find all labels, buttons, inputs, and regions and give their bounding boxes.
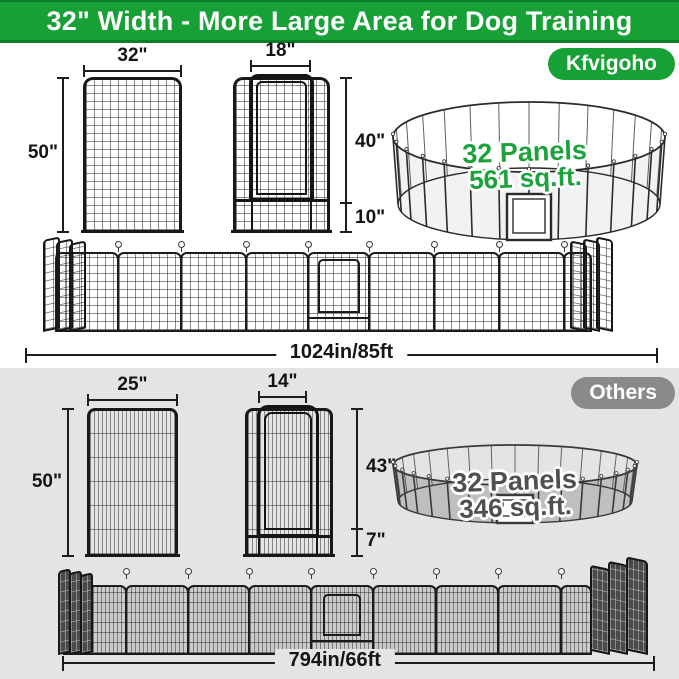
row-graphic-part [368,252,435,332]
others-pen-caption: 32 Panels 346 sq.ft. [409,464,621,523]
brand-door-width-line [250,65,311,67]
row-graphic-part [178,241,185,248]
brand-bottom-height-label: 10" [355,207,385,229]
brand-door-panel-diagram [233,77,330,233]
others-panel-width-line [87,399,178,401]
row-graphic-part [495,568,502,575]
brand-door-height-label: 40" [355,131,385,153]
banner-title: 32" Width - More Large Area for Dog Trai… [47,6,633,37]
row-graphic-part [433,568,440,575]
brand-panel-row-illustration [25,250,658,332]
others-door-panel-diagram [245,408,333,557]
row-graphic-part [590,565,610,655]
brand-total-length-label: 1024in/85ft [276,341,407,364]
brand-panel-height-label: 50" [20,142,58,164]
brand-panel-width-line [83,70,182,72]
row-graphic-part [323,594,361,636]
row-graphic-part [185,568,192,575]
others-panel-width-label: 25" [87,374,178,396]
others-panel-height-label: 50" [24,471,62,493]
others-bottom-height-label: 7" [366,530,386,552]
brand-panel-diagram [83,77,182,233]
row-graphic-part [372,585,437,655]
brand-panel-width-label: 32" [83,45,182,67]
others-panel-row-illustration [58,580,655,655]
row-graphic-part [307,252,370,332]
row-graphic-part [248,585,312,655]
row-graphic-part [246,568,253,575]
others-panel-height-line [67,408,69,557]
row-graphic-part [560,585,592,655]
row-graphic-part [305,241,312,248]
row-graphic-part [187,585,250,655]
row-graphic-part [431,241,438,248]
others-door-width-line [258,396,307,398]
row-graphic-part [123,568,130,575]
row-graphic-part [497,585,562,655]
row-graphic-part [433,252,500,332]
row-graphic-part [243,241,250,248]
others-door-width-label: 14" [258,371,307,393]
row-graphic-part [308,568,315,575]
row-graphic-part [115,241,122,248]
row-graphic-part [366,241,373,248]
others-total-length-label: 794in/66ft [275,649,395,672]
row-graphic-part [180,252,247,332]
row-graphic-part [318,259,360,313]
row-graphic-part [125,585,189,655]
others-badge: Others [571,377,675,409]
banner: 32" Width - More Large Area for Dog Trai… [0,0,679,43]
row-graphic-part [608,561,628,655]
row-graphic-part [117,252,182,332]
product-comparison-infographic: 32" Width - More Large Area for Dog Trai… [0,0,679,679]
row-graphic-part [312,640,372,642]
others-total-length-line: 794in/66ft [62,662,655,664]
row-graphic-part [626,556,648,655]
row-graphic-part [435,585,499,655]
brand-door-height-line [345,77,347,233]
brand-badge: Kfvigoho [548,48,675,80]
others-door-height-line [356,408,358,557]
row-graphic-part [309,317,368,319]
row-graphic-part [310,585,374,655]
brand-pen-caption: 32 Panels 561 sq.ft. [419,135,631,194]
row-graphic-part [558,568,565,575]
brand-section: Kfvigoho 32" 50" 18" 40" 10" 32 Panels 5… [0,43,679,368]
row-graphic-part [596,236,613,332]
row-graphic-part [496,241,503,248]
others-section: Others 25" 50" 14" 43" 7" 32 Panels 346 … [0,368,679,679]
row-graphic-part [498,252,565,332]
row-graphic-part [370,568,377,575]
row-graphic-part [80,572,93,655]
row-graphic-part [561,241,568,248]
row-graphic-part [69,240,86,332]
row-graphic-part [245,252,309,332]
brand-panel-height-line [62,77,64,233]
brand-total-length-line: 1024in/85ft [25,354,658,356]
others-panel-diagram [87,408,178,557]
brand-door-width-label: 18" [250,40,311,62]
